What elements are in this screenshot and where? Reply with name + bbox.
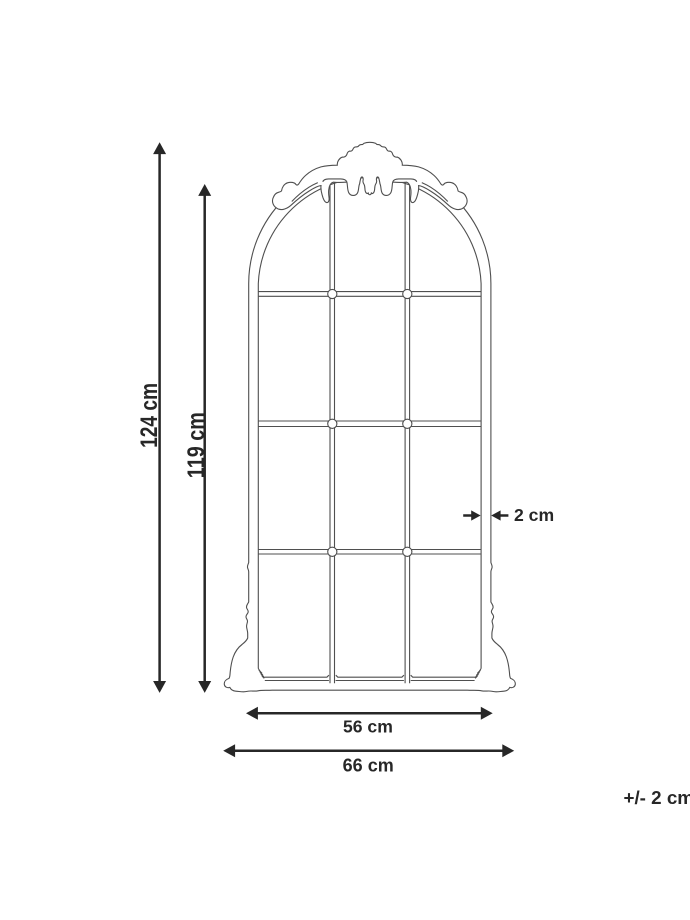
svg-text:124 cm: 124 cm: [136, 383, 163, 448]
svg-text:66 cm: 66 cm: [343, 756, 394, 776]
svg-text:56 cm: 56 cm: [343, 717, 393, 737]
svg-text:2 cm: 2 cm: [514, 505, 554, 525]
svg-text:119 cm: 119 cm: [183, 412, 210, 478]
svg-text:+/- 2 cm: +/- 2 cm: [624, 787, 690, 808]
